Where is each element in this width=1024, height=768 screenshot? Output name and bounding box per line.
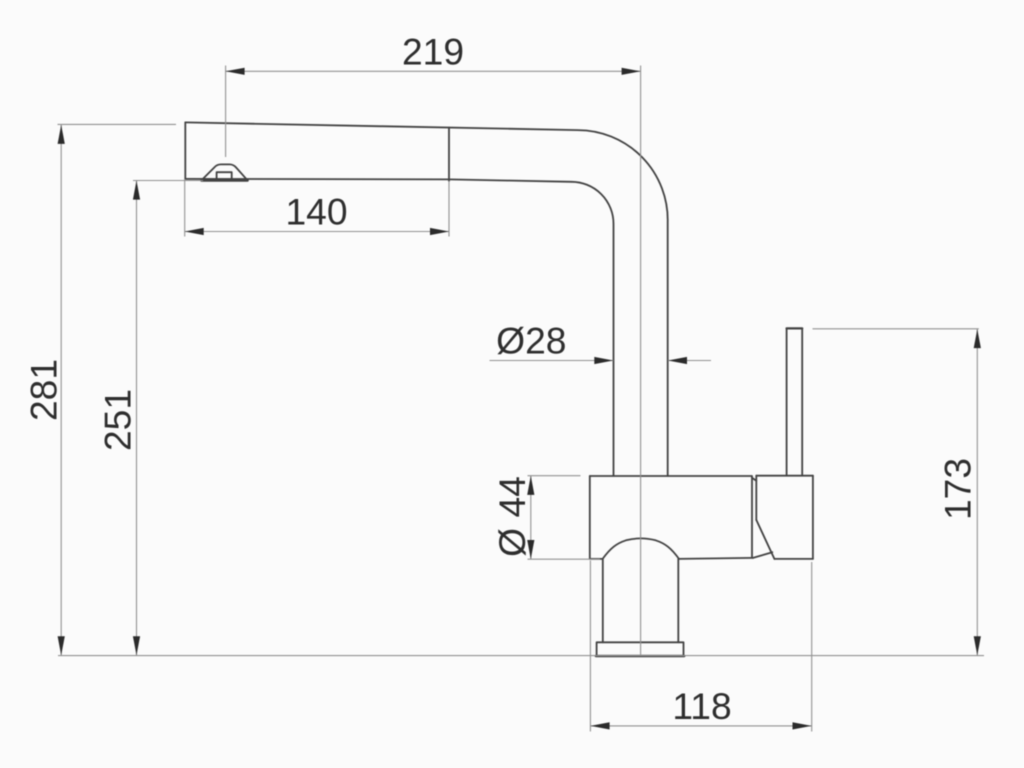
svg-text:219: 219: [402, 31, 464, 73]
svg-text:281: 281: [22, 359, 64, 421]
svg-text:Ø 44: Ø 44: [491, 476, 533, 557]
svg-text:118: 118: [672, 685, 731, 727]
svg-text:251: 251: [96, 389, 138, 451]
svg-text:140: 140: [285, 191, 347, 233]
svg-text:Ø28: Ø28: [496, 320, 566, 362]
svg-text:173: 173: [936, 458, 978, 520]
